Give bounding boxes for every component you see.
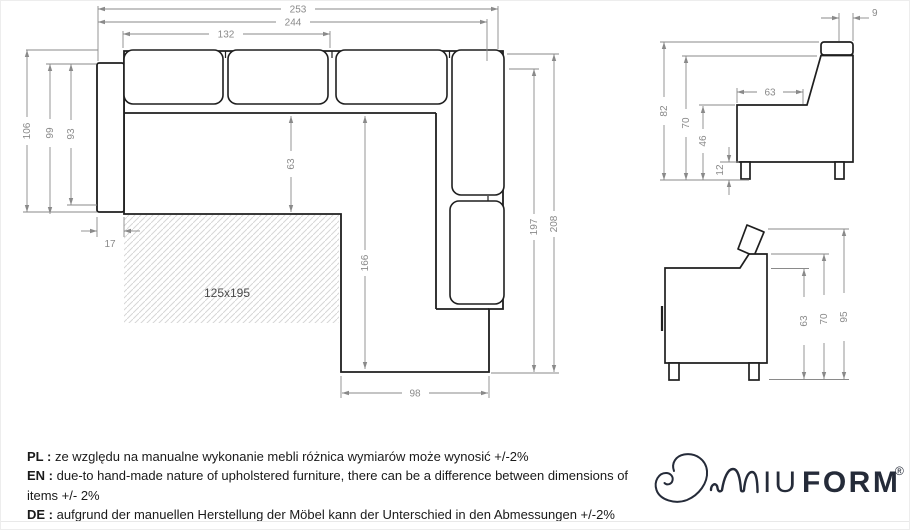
side-cushion-1 (452, 50, 504, 195)
bottom-divider (1, 521, 910, 522)
logo-wave-m-icon (711, 469, 758, 492)
dim-label-106: 106 (22, 122, 33, 139)
dim-side2-back-top-height: 70 (819, 254, 830, 379)
dim-total-height: 82 (659, 42, 670, 180)
logo-text-form: FORM (802, 466, 900, 499)
dim-label-70b: 70 (819, 313, 830, 325)
dim-label-63-plan: 63 (286, 158, 297, 170)
dim-label-208: 208 (549, 215, 560, 232)
side2-body (662, 225, 767, 380)
plan-view: 125x195 253 (22, 5, 560, 400)
note-pl-text: ze względu na manualne wykonanie mebli r… (55, 449, 529, 464)
dim-label-63-side: 63 (764, 88, 776, 99)
back-cushion-1 (124, 50, 223, 104)
logo-bean-icon (656, 454, 707, 502)
side-view-profile: 9 82 70 63 4 (659, 8, 878, 195)
dim-label-93: 93 (66, 128, 77, 140)
registered-trademark-icon: ® (895, 464, 904, 478)
dim-headrest-thickness: 9 (821, 8, 878, 19)
dim-seat-height: 46 (698, 106, 709, 180)
technical-drawing: 125x195 253 (1, 1, 910, 441)
dim-backrest-height: 70 (681, 56, 692, 180)
side-cushion-2 (450, 201, 504, 304)
dim-total-width: 253 (98, 5, 498, 16)
dim-seat-depth-side: 63 (737, 88, 803, 99)
dim-inner-depth: 93 (66, 64, 77, 205)
dim-label-82: 82 (659, 105, 670, 117)
left-armrest (97, 63, 124, 212)
side2-dimensions: 63 70 95 (768, 229, 850, 380)
dim-chaise-outer-length: 197 (529, 69, 540, 372)
dim-label-17: 17 (104, 239, 116, 250)
dim-leg-height: 12 (715, 147, 729, 195)
dim-label-244: 244 (285, 18, 302, 29)
side2-leg-right (749, 363, 759, 380)
side1-leg-left (741, 162, 750, 179)
dim-chaise-width: 98 (342, 389, 488, 400)
tolerance-notes: PL : ze względu na manualne wykonanie me… (27, 447, 637, 530)
dim-label-12: 12 (715, 164, 726, 176)
dim-label-98: 98 (409, 389, 421, 400)
front-view-armrest: 63 70 95 (662, 225, 850, 380)
dim-label-70: 70 (681, 117, 692, 129)
back-cushion-2 (228, 50, 328, 104)
dim-total-depth: 106 (22, 50, 33, 212)
note-en-text: due-to hand-made nature of upholstered f… (27, 468, 628, 502)
side1-leg-right (835, 162, 844, 179)
dim-depth-to-seat-front: 99 (45, 64, 56, 214)
side2-headrest-flap (738, 225, 764, 256)
note-de: DE : aufgrund der manuellen Herstellung … (27, 505, 637, 530)
dim-left-seat-width: 132 (123, 30, 330, 41)
dim-label-95: 95 (839, 311, 850, 323)
sleeping-area: 125x195 (124, 215, 339, 323)
dim-label-197: 197 (529, 218, 540, 235)
side2-leg-left (669, 363, 679, 380)
logo-text-iu: IU (763, 466, 799, 499)
dim-side2-seat-top-height: 63 (799, 269, 810, 379)
note-en: EN : due-to hand-made nature of upholste… (27, 466, 637, 505)
product-dimension-sheet: 125x195 253 (0, 0, 910, 530)
note-en-prefix: EN : (27, 468, 53, 483)
dim-label-63b: 63 (799, 315, 810, 327)
dim-label-9: 9 (872, 8, 878, 19)
miuform-logo: IU FORM ® (649, 449, 909, 521)
back-cushion-3 (336, 50, 447, 104)
note-de-text: aufgrund der manuellen Herstellung der M… (27, 507, 615, 530)
dim-label-253: 253 (290, 5, 307, 16)
note-pl-prefix: PL : (27, 449, 51, 464)
dim-body-width: 244 (98, 18, 487, 29)
note-pl: PL : ze względu na manualne wykonanie me… (27, 447, 637, 466)
dim-right-total-length: 208 (549, 54, 560, 372)
dim-label-166: 166 (360, 254, 371, 271)
note-de-prefix: DE : (27, 507, 53, 522)
dim-label-99: 99 (45, 127, 56, 139)
side1-body (737, 42, 853, 179)
dim-label-46: 46 (698, 135, 709, 147)
side1-headrest (821, 42, 853, 55)
dim-side2-max-height: 95 (839, 229, 850, 379)
dim-label-132: 132 (218, 30, 235, 41)
sleeping-area-label: 125x195 (204, 286, 250, 300)
